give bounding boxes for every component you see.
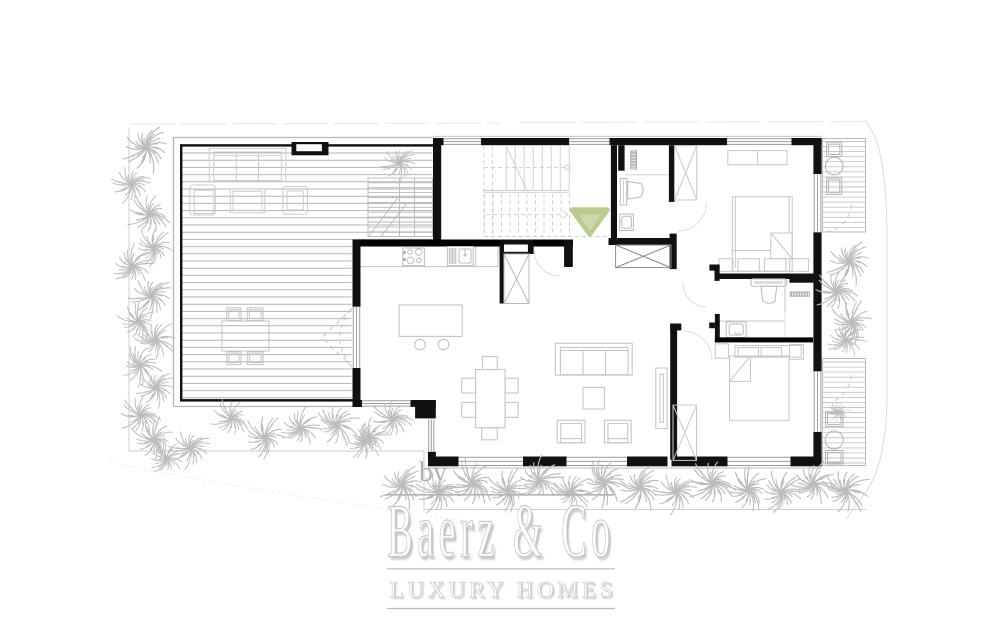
- svg-text:by: by: [419, 457, 447, 488]
- svg-text:Baerz & Co: Baerz & Co: [387, 488, 614, 573]
- svg-text:LUXURY HOMES: LUXURY HOMES: [389, 578, 616, 604]
